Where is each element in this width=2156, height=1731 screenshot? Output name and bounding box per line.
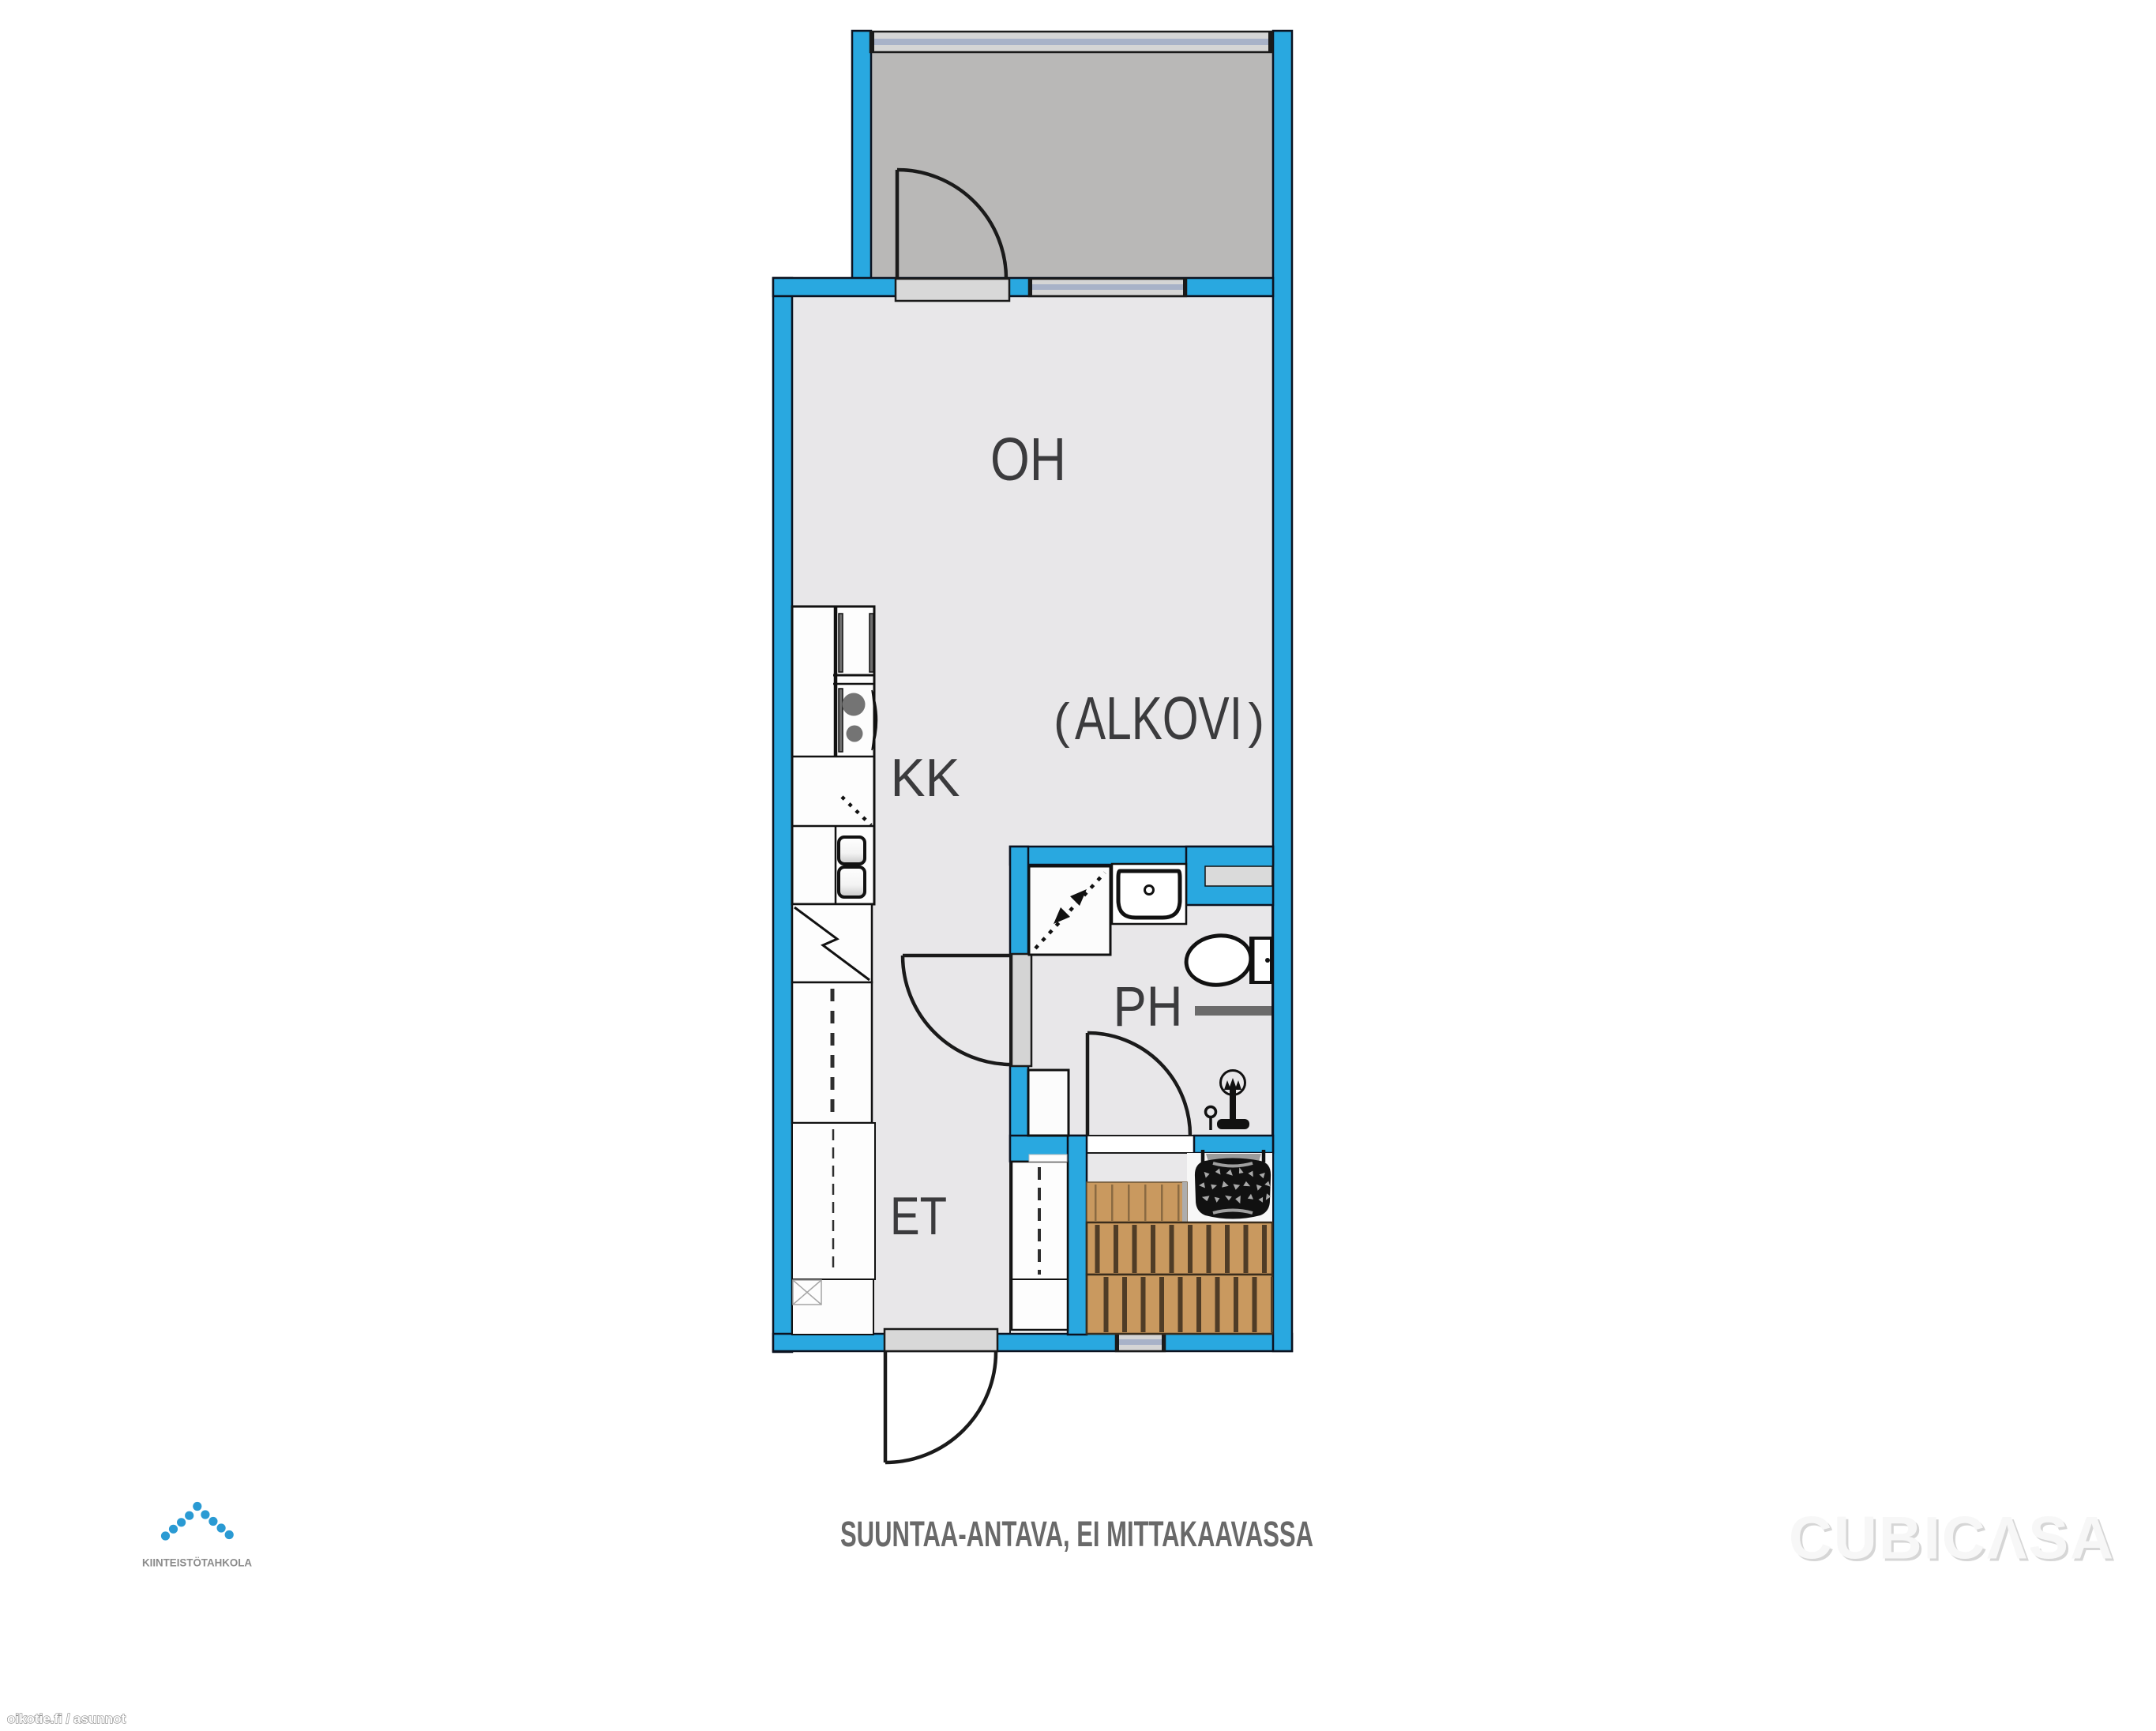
svg-text:ET: ET bbox=[890, 1186, 947, 1246]
svg-text:PH: PH bbox=[1114, 976, 1183, 1038]
svg-text:SUUNTAA-ANTAVA, EI MITTAKAAVAS: SUUNTAA-ANTAVA, EI MITTAKAAVASSA bbox=[840, 1514, 1313, 1554]
svg-text:KK: KK bbox=[891, 748, 960, 808]
svg-text:(: ( bbox=[1054, 694, 1070, 749]
svg-text:CUBICΛSA: CUBICΛSA bbox=[1789, 1505, 2113, 1572]
svg-text:): ) bbox=[1248, 694, 1264, 749]
svg-text:oikotie.fi / asunnot: oikotie.fi / asunnot bbox=[7, 1711, 126, 1726]
svg-text:KIINTEISTÖTAHKOLA: KIINTEISTÖTAHKOLA bbox=[142, 1557, 252, 1569]
svg-text:OH: OH bbox=[990, 426, 1066, 494]
svg-text:ALKOVI: ALKOVI bbox=[1075, 685, 1242, 753]
